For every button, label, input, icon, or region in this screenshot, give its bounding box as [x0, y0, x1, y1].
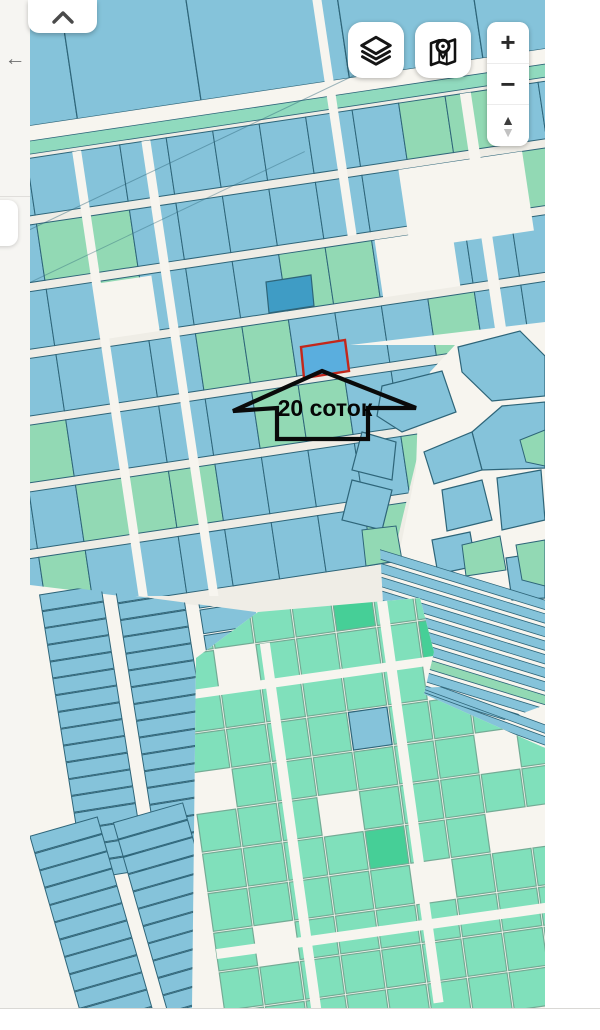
annotation-label: 20 соток: [278, 395, 373, 421]
back-button[interactable]: ←: [2, 46, 28, 72]
map-pin-icon: [425, 32, 461, 68]
zoom-out-button[interactable]: −: [487, 63, 529, 105]
parcel-layers: [0, 0, 600, 1030]
collapse-sheet-button[interactable]: [28, 0, 97, 33]
zoom-in-button[interactable]: +: [487, 22, 529, 63]
arrow-down-icon: ▼: [501, 126, 515, 138]
left-rail: [0, 0, 30, 1008]
rail-divider: [0, 196, 30, 197]
minus-icon: −: [500, 71, 515, 97]
collapsed-side-card[interactable]: [0, 200, 18, 246]
bottom-bar: [0, 1008, 600, 1030]
layers-icon: [358, 32, 394, 68]
chevron-up-icon: [46, 8, 80, 26]
plus-icon: +: [500, 29, 515, 55]
right-gutter: [545, 0, 600, 1008]
app-window: 20 соток ← + −: [0, 0, 600, 1030]
layers-button[interactable]: [348, 22, 404, 78]
map-legend-button[interactable]: [415, 22, 471, 78]
pitch-toggle-button[interactable]: ▲ ▼: [487, 104, 529, 146]
zoom-control: + − ▲ ▼: [487, 22, 529, 146]
map-canvas[interactable]: 20 соток: [0, 0, 600, 1030]
